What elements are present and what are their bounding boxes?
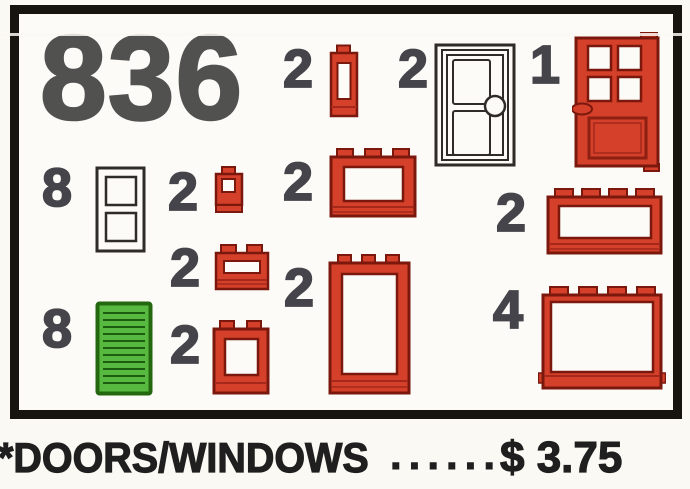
piece-red-window-1x1x2 (328, 44, 360, 120)
piece-red-window-1x4x2 (546, 188, 663, 260)
piece-red-window-1x3x2 (329, 148, 417, 224)
product-price: $ 3.75 (500, 430, 622, 486)
footer-caption: *DOORS/WINDOWS ...... $ 3.75 (0, 430, 690, 489)
piece-white-window-1x2x3 (95, 166, 148, 254)
qty-white-door: 2 (398, 42, 428, 96)
price-leader-dots: ...... (390, 427, 502, 483)
piece-red-window-1x2x2 (212, 320, 270, 396)
set-number: 836 (40, 28, 243, 128)
qty-red-door: 1 (530, 38, 560, 92)
qty-red-window-1x3x2: 2 (283, 155, 313, 209)
piece-red-window-brick-1x1 (214, 166, 244, 214)
qty-red-window-1x4x3: 4 (493, 283, 523, 337)
qty-red-window-1x2x2: 2 (170, 318, 200, 372)
qty-green-shutter: 8 (42, 302, 72, 356)
qty-red-window-brick-1x1: 2 (168, 165, 198, 219)
qty-red-brick-slot-1x2: 2 (170, 241, 200, 295)
qty-red-window-1x1x2: 2 (283, 42, 313, 96)
qty-red-door-frame-1x2x3: 2 (284, 261, 314, 315)
piece-red-door (572, 32, 663, 173)
piece-red-door-frame-1x2x3 (327, 254, 412, 397)
qty-red-window-1x4x2: 2 (496, 186, 526, 240)
catalog-page: 836 2 2 1 (0, 0, 690, 489)
piece-green-shutter (95, 301, 153, 396)
product-title: *DOORS/WINDOWS (0, 430, 369, 486)
piece-red-window-1x4x3 (538, 286, 666, 396)
paper-crease-line (0, 33, 690, 36)
piece-white-door (434, 43, 516, 167)
qty-white-window-1x2x3: 8 (42, 161, 72, 215)
piece-red-brick-slot-1x2 (214, 244, 270, 292)
